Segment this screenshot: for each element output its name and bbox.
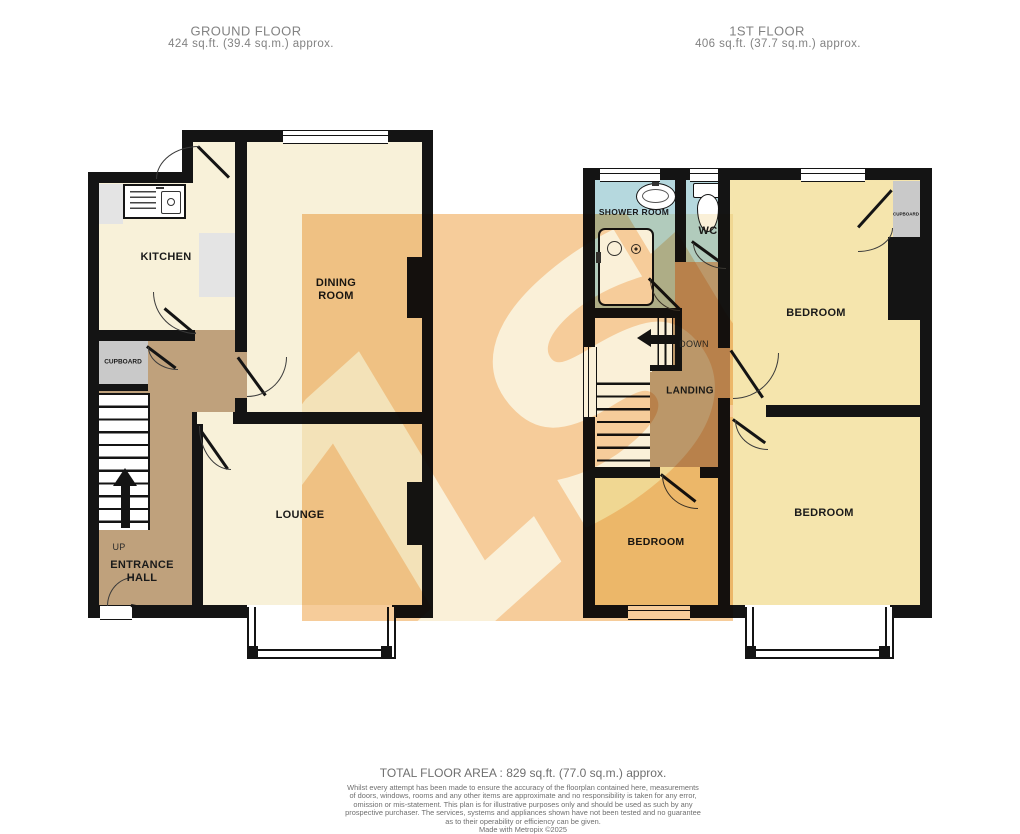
sink-tap-icon	[156, 187, 164, 189]
ff-bottom-wall-b	[690, 605, 745, 618]
ff-bottom-wall-a	[583, 605, 628, 618]
down-arrow-shaft	[650, 335, 677, 344]
ff-center-wall-lower	[718, 398, 730, 618]
lounge-bay-window-inner	[254, 607, 389, 651]
ff-winder-bottom-wall	[650, 365, 678, 371]
ff-landing-bedroom-wall-a	[595, 467, 660, 478]
cupboard-first-label: CUPBOARD	[893, 212, 919, 217]
ff-bedroom-divider-wall	[766, 405, 920, 417]
ground-floor-area: 424 sq.ft. (39.4 sq.m.) approx.	[168, 38, 334, 50]
washbasin-icon	[636, 183, 676, 210]
entrance-hall-label: ENTRANCE HALL	[110, 559, 174, 585]
gf-lounge-left-wall	[192, 424, 203, 608]
dining-room-label-line2: ROOM	[316, 290, 356, 303]
gf-bottom-wall-c	[392, 605, 433, 618]
first-floor-area: 406 sq.ft. (37.7 sq.m.) approx.	[695, 38, 861, 50]
shower-icon	[598, 228, 654, 306]
gf-kitchen-bottom-wall	[88, 330, 195, 341]
wc-label: WC	[699, 225, 718, 237]
kitchen-label: KITCHEN	[141, 251, 192, 263]
bay-corner-post	[381, 646, 392, 657]
gf-dining-top-wall-left	[235, 130, 283, 142]
ff-landing-bedroom-wall-b	[700, 467, 718, 478]
shower-room-label: SHOWER ROOM	[599, 207, 669, 217]
bay-corner-post	[879, 646, 890, 657]
dining-room-label: DINING ROOM	[316, 277, 356, 303]
ff-shower-wc-wall	[675, 180, 686, 262]
up-arrow-shaft	[121, 484, 130, 528]
gf-cupboard-wall	[99, 384, 148, 391]
kitchen-worktop	[99, 184, 123, 224]
kitchen-sink-icon	[123, 184, 186, 219]
metropix-credit: Made with Metropix ©2025	[479, 826, 567, 834]
bedroom-small-label: BEDROOM	[628, 536, 685, 548]
bedroom-bay-window-inner	[752, 607, 887, 651]
sink-drainer	[130, 191, 156, 212]
first-floor-title: 1ST FLOOR	[729, 24, 805, 39]
gf-lounge-chimney	[407, 482, 422, 545]
gf-right-wall	[422, 130, 433, 618]
gf-bottom-wall-a	[88, 605, 100, 618]
washbasin-bowl	[642, 189, 669, 203]
shower-head	[607, 241, 622, 256]
gf-dining-lounge-wall	[233, 412, 433, 424]
lounge-doorway-floor	[197, 412, 233, 424]
shower-drain	[631, 244, 641, 254]
ff-top-wall-a	[583, 168, 600, 180]
wc-window	[690, 168, 718, 182]
floorplan-page: GROUND FLOOR 424 sq.ft. (39.4 sq.m.) app…	[0, 0, 1020, 834]
bedroom-back-window	[801, 168, 865, 182]
ff-chimney	[888, 237, 920, 320]
down-label: DOWN	[679, 339, 709, 349]
lounge-label: LOUNGE	[276, 509, 325, 521]
dining-room-label-line1: DINING	[316, 277, 356, 290]
bedroom-front-doorway-floor	[733, 405, 768, 417]
bedroom-small-window	[628, 605, 690, 620]
shower-room-window	[600, 168, 660, 182]
entrance-hall-label-line2: HALL	[110, 572, 174, 585]
bay-corner-post	[745, 646, 756, 657]
ff-top-wall-b	[660, 168, 690, 180]
gf-lounge-wall-stub	[192, 412, 197, 424]
gf-dining-chimney	[407, 257, 422, 318]
bedroom-front-label: BEDROOM	[794, 507, 854, 519]
down-arrow-icon	[637, 329, 651, 347]
front-door-gap	[100, 605, 132, 620]
bedroom-back-label: BEDROOM	[786, 307, 846, 319]
entrance-hall-label-line1: ENTRANCE	[110, 559, 174, 572]
shower-control	[596, 252, 601, 263]
gf-left-wall	[88, 172, 99, 618]
gf-dining-left-wall	[235, 142, 247, 352]
ff-shower-bottom-wall	[595, 308, 682, 318]
ground-floor-title: GROUND FLOOR	[191, 24, 302, 39]
bedroom-back-doorway-floor	[718, 348, 730, 398]
total-floor-area: TOTAL FLOOR AREA : 829 sq.ft. (77.0 sq.m…	[380, 766, 667, 780]
ff-top-wall-c	[718, 168, 801, 180]
bay-corner-post	[247, 646, 258, 657]
back-door-arc	[156, 146, 199, 179]
stairs-down-flight-icon	[597, 372, 650, 468]
washbasin-tap-icon	[652, 182, 659, 186]
ff-bottom-wall-c	[890, 605, 932, 618]
sink-drain	[167, 198, 175, 206]
kitchen-unit	[199, 233, 235, 297]
landing-label: LANDING	[666, 386, 714, 397]
stairwell-window	[583, 347, 597, 417]
dining-window	[283, 130, 388, 144]
up-label: UP	[112, 542, 125, 552]
cupboard-ground-label: CUPBOARD	[104, 359, 142, 366]
cupboard-first-floor	[893, 181, 920, 237]
ff-right-wall	[920, 168, 932, 618]
